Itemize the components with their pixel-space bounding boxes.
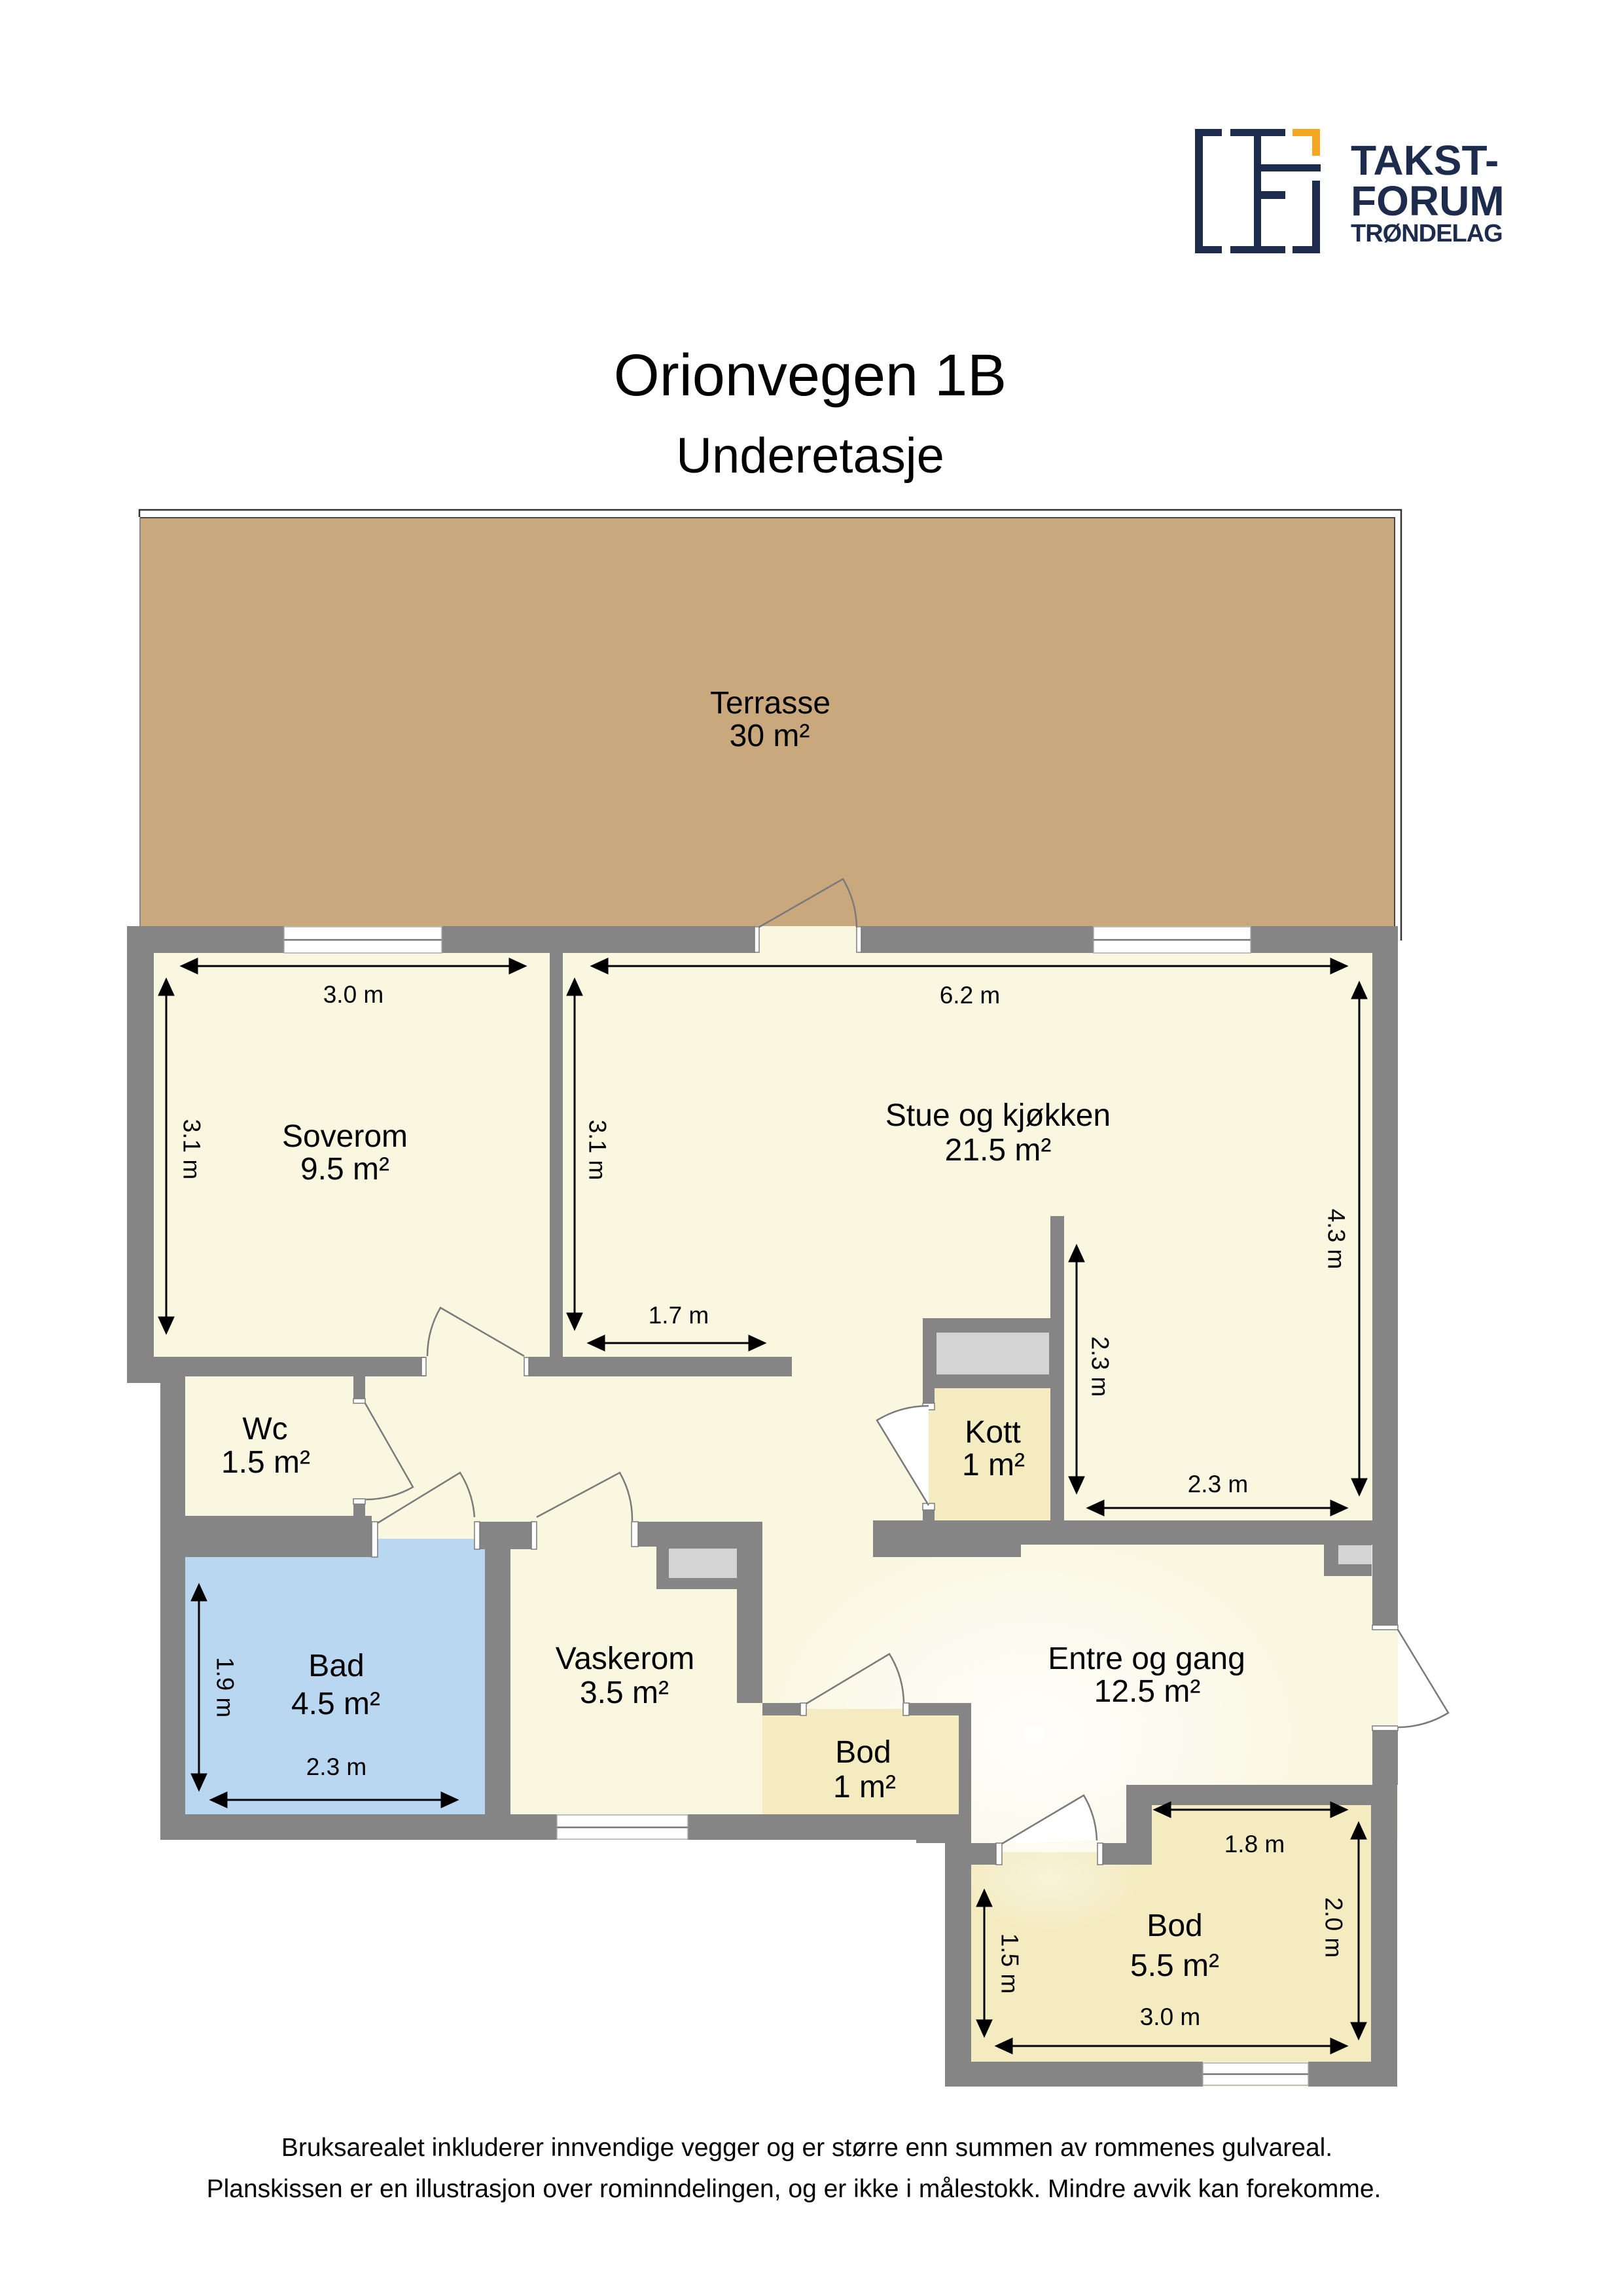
svg-text:1.5 m²: 1.5 m² xyxy=(221,1445,310,1480)
svg-text:21.5 m²: 21.5 m² xyxy=(945,1133,1052,1168)
svg-text:9.5 m²: 9.5 m² xyxy=(300,1152,389,1187)
svg-text:1.5 m: 1.5 m xyxy=(997,1933,1024,1994)
svg-text:3.1 m: 3.1 m xyxy=(584,1120,611,1181)
svg-text:Planskissen er en illustrasjon: Planskissen er en illustrasjon over romi… xyxy=(207,2175,1382,2203)
svg-text:Soverom: Soverom xyxy=(282,1119,408,1154)
svg-text:2.3 m: 2.3 m xyxy=(306,1753,367,1780)
svg-text:3.0 m: 3.0 m xyxy=(323,981,384,1008)
svg-text:Bad: Bad xyxy=(308,1649,364,1683)
svg-text:2.3 m: 2.3 m xyxy=(1188,1471,1249,1498)
svg-text:1.9 m: 1.9 m xyxy=(212,1657,239,1718)
svg-text:FORUM: FORUM xyxy=(1351,177,1505,224)
svg-text:Wc: Wc xyxy=(242,1412,287,1446)
svg-text:5.5 m²: 5.5 m² xyxy=(1130,1948,1219,1983)
svg-text:2.3 m: 2.3 m xyxy=(1087,1336,1114,1397)
svg-text:Bruksarealet inkluderer innven: Bruksarealet inkluderer innvendige vegge… xyxy=(281,2134,1332,2162)
svg-text:4.3 m: 4.3 m xyxy=(1323,1209,1350,1270)
svg-text:TRØNDELAG: TRØNDELAG xyxy=(1351,220,1503,247)
svg-text:6.2 m: 6.2 m xyxy=(940,982,1001,1009)
svg-text:1.7 m: 1.7 m xyxy=(649,1302,709,1329)
svg-text:3.5 m²: 3.5 m² xyxy=(580,1676,669,1710)
svg-text:3.0 m: 3.0 m xyxy=(1140,2003,1201,2030)
svg-text:30 m²: 30 m² xyxy=(730,719,810,753)
svg-text:Underetasje: Underetasje xyxy=(676,428,944,484)
svg-text:12.5 m²: 12.5 m² xyxy=(1094,1674,1201,1709)
svg-text:Entre og gang: Entre og gang xyxy=(1048,1641,1245,1676)
svg-text:Vaskerom: Vaskerom xyxy=(556,1641,695,1676)
svg-text:Kott: Kott xyxy=(965,1415,1020,1450)
svg-text:1.8 m: 1.8 m xyxy=(1224,1831,1285,1857)
svg-text:Bod: Bod xyxy=(1147,1909,1202,1943)
svg-text:4.5 m²: 4.5 m² xyxy=(291,1687,380,1721)
svg-text:3.1 m: 3.1 m xyxy=(179,1119,205,1180)
svg-text:Orionvegen 1B: Orionvegen 1B xyxy=(614,343,1007,408)
svg-text:2.0 m: 2.0 m xyxy=(1321,1897,1347,1958)
svg-text:Stue og kjøkken: Stue og kjøkken xyxy=(885,1098,1111,1133)
svg-text:Bod: Bod xyxy=(835,1735,891,1770)
svg-text:1 m²: 1 m² xyxy=(962,1448,1025,1482)
svg-text:1 m²: 1 m² xyxy=(833,1770,896,1804)
svg-text:Terrasse: Terrasse xyxy=(710,686,830,721)
